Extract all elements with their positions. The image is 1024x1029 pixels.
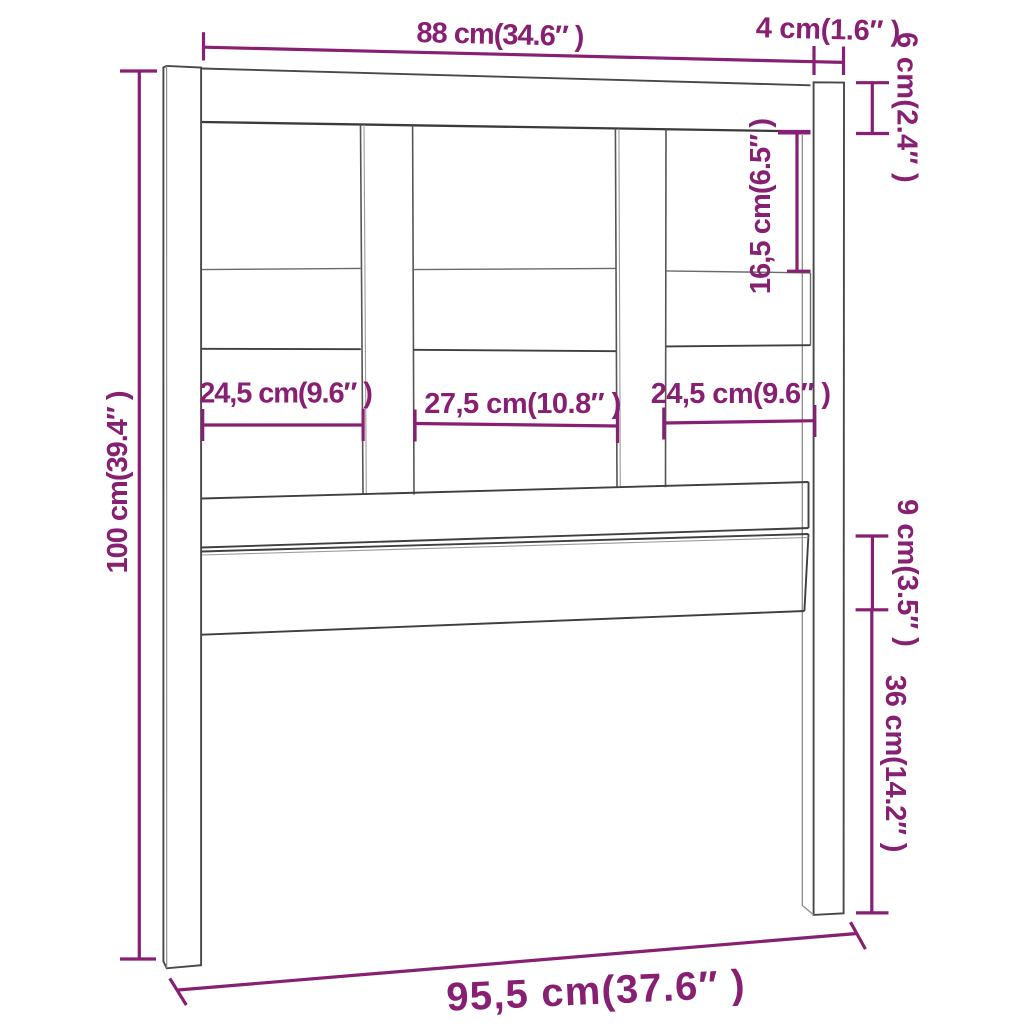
svg-text:100 cm(39.4″ ): 100 cm(39.4″ ) bbox=[102, 391, 134, 573]
svg-text:16,5 cm(6.5″ ): 16,5 cm(6.5″ ) bbox=[745, 119, 777, 295]
svg-text:24,5 cm(9.6″ ): 24,5 cm(9.6″ ) bbox=[651, 378, 831, 410]
svg-text:36 cm(14.2″ ): 36 cm(14.2″ ) bbox=[879, 675, 911, 852]
svg-text:4 cm(1.6″ ): 4 cm(1.6″ ) bbox=[755, 12, 900, 48]
svg-text:6 cm(2.4″ ): 6 cm(2.4″ ) bbox=[891, 32, 923, 183]
svg-text:9 cm(3.5″ ): 9 cm(3.5″ ) bbox=[891, 499, 923, 647]
svg-text:27,5 cm(10.8″ ): 27,5 cm(10.8″ ) bbox=[424, 388, 621, 420]
svg-text:88 cm(34.6″ ): 88 cm(34.6″ ) bbox=[416, 17, 584, 53]
svg-text:24,5 cm(9.6″ ): 24,5 cm(9.6″ ) bbox=[199, 378, 372, 410]
